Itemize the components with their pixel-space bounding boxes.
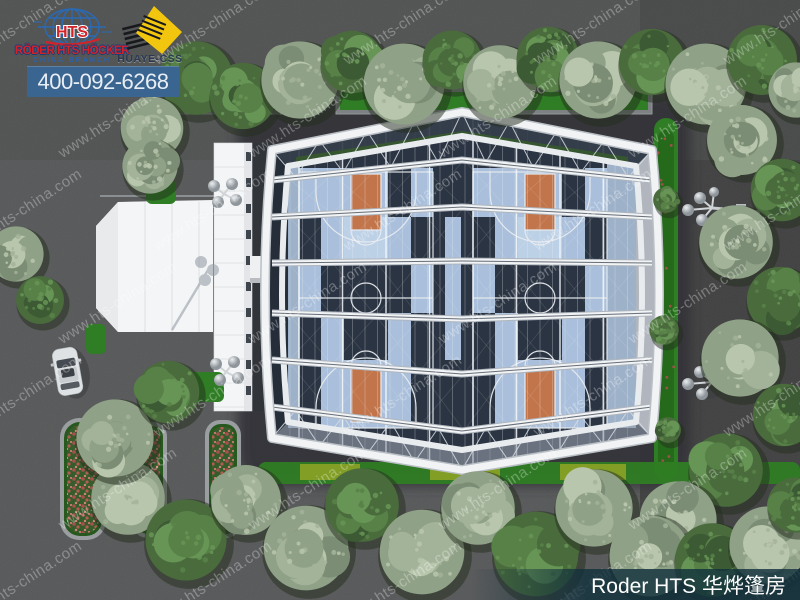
- glass-panel: [562, 217, 585, 263]
- corridor-window: [246, 282, 251, 291]
- main-sports-tent: [250, 100, 670, 480]
- glass-panel: [562, 313, 585, 360]
- corridor-window: [246, 308, 251, 317]
- glass-panel: [473, 263, 495, 313]
- huaye-label: HUAYE-CSS: [112, 53, 188, 65]
- court-key: [351, 174, 381, 230]
- hts-globe-logo: HTS: [26, 4, 118, 48]
- corridor-window: [246, 334, 251, 343]
- corridor-window: [246, 178, 251, 187]
- glass-panel: [321, 313, 344, 360]
- corridor-window: [246, 386, 251, 395]
- hts-acronym: HTS: [56, 24, 88, 41]
- corridor-window: [246, 152, 251, 161]
- huaye-logo-icon: [120, 6, 184, 56]
- glass-panel: [321, 217, 344, 263]
- corridor-window: [246, 230, 251, 239]
- corridor-window: [246, 360, 251, 369]
- corridor-window: [246, 204, 251, 213]
- glass-panel: [495, 217, 518, 263]
- aerial-render-scene: www.hts-china.comwww.hts-china.comwww.ht…: [0, 0, 800, 600]
- caption-bar: Roder HTS 华烨篷房: [470, 569, 800, 600]
- branding-block: HTS RÖDER HTS HÖCKER CHINA BRANCH HUAYE-…: [0, 0, 220, 110]
- hedge-strip: [86, 324, 106, 354]
- caption-text: Roder HTS 华烨篷房: [591, 570, 786, 600]
- side-walkway: [607, 164, 636, 428]
- phone-banner: 400-092-6268: [27, 66, 179, 97]
